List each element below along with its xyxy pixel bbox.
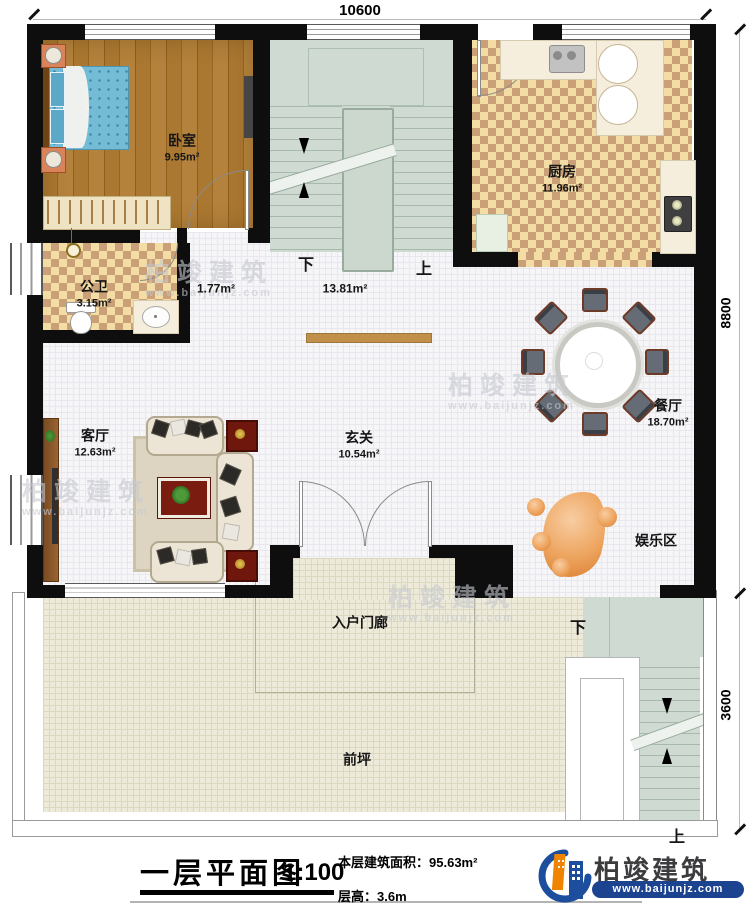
stair-flight-right — [390, 96, 453, 252]
watermark: 柏竣建筑 www.baijunjz.com — [388, 578, 516, 624]
dimension-tick — [734, 23, 746, 35]
wall — [453, 252, 518, 267]
wall — [453, 24, 472, 252]
window — [307, 24, 420, 40]
pendant-lamp-cord — [71, 228, 72, 244]
wall — [270, 545, 300, 558]
watermark-url: www.baijunjz.com — [22, 506, 150, 518]
wall — [43, 585, 65, 598]
floor-height-line: 层高：3.6m — [338, 886, 407, 905]
cabinet-medallion — [235, 559, 245, 569]
exterior-landing-line — [609, 597, 610, 657]
dimension-tick — [700, 8, 712, 20]
stair-down-label: 下 — [298, 257, 314, 275]
dimension-line-right — [739, 30, 740, 832]
pendant-lamp — [66, 243, 81, 258]
wall — [660, 585, 716, 598]
sofa-pillow — [175, 549, 193, 567]
table-lamp — [45, 47, 62, 64]
bean-bag-cushion — [527, 498, 545, 516]
room-label-entertainment: 娱乐区 — [635, 533, 677, 548]
watermark: 柏竣建筑 www.baijunjz.com — [448, 366, 576, 412]
watermark-text: 柏竣建筑 — [388, 584, 516, 612]
room-label-porch: 入户门廊 — [332, 615, 388, 630]
floor-area-line: 本层建筑面积：95.63m² — [338, 852, 477, 871]
dimension-top: 10600 — [339, 2, 381, 19]
brand-url: www.baijunjz.com — [613, 883, 724, 895]
bean-bag-cushion — [552, 558, 571, 577]
title-underline — [140, 890, 334, 895]
dimension-right-lower: 3600 — [718, 689, 734, 720]
wall — [253, 24, 270, 232]
room-label-kitchen: 厨房11.96m² — [542, 165, 582, 196]
dining-chair — [582, 288, 608, 312]
wall — [694, 24, 716, 598]
dimension-line-top — [33, 19, 706, 20]
bean-bag-cushion — [597, 507, 617, 527]
brand-logo-icon — [536, 846, 592, 906]
watermark-text: 柏竣建筑 — [448, 372, 576, 400]
dimension-right-upper: 8800 — [718, 297, 734, 328]
floor-area-value: 95.63m² — [429, 855, 477, 870]
watermark-url: www.baijunjz.com — [388, 612, 516, 624]
wall — [177, 228, 187, 243]
cabinet-medallion — [235, 429, 245, 439]
kitchen-appliance — [476, 214, 508, 252]
window — [85, 24, 215, 40]
exterior-stair-up-label: 上 — [669, 829, 685, 847]
floor-height-label: 层高： — [338, 889, 377, 904]
stove-burner — [672, 200, 682, 210]
stair-upper-outline — [308, 48, 424, 106]
stair-down-area: 1.77m² — [197, 282, 235, 295]
exterior-stair-arrow — [662, 748, 672, 764]
stair-landing — [342, 108, 394, 272]
stair-direction-arrow — [299, 182, 309, 198]
bed-blanket — [63, 66, 89, 148]
kitchen-sink-faucet — [567, 51, 576, 60]
bed-pillow — [50, 72, 65, 107]
brand-url-bar: www.baijunjz.com — [592, 881, 744, 898]
dining-chair — [582, 412, 608, 436]
floor-height-value: 3.6m — [377, 889, 407, 904]
sink-drain — [154, 315, 157, 318]
exterior-landing — [583, 597, 703, 657]
wall — [248, 228, 270, 243]
sofa-pillow — [191, 548, 208, 565]
title-block: 一层平面图 1:100 本层建筑面积：95.63m² 层高：3.6m 柏竣建筑 … — [0, 840, 750, 913]
toilet-bowl — [70, 311, 92, 334]
sofa-pillow — [222, 523, 241, 542]
room-label-dining: 餐厅18.70m² — [648, 399, 689, 430]
wall — [270, 558, 293, 598]
room-label-foyer: 玄关10.54m² — [339, 431, 380, 462]
kitchen-sink-faucet — [553, 51, 562, 60]
stair-direction-arrow — [299, 138, 309, 154]
plant — [172, 486, 190, 504]
dining-table-center — [585, 352, 603, 370]
plant — [45, 430, 55, 442]
floor-area-label: 本层建筑面积： — [338, 855, 429, 870]
stove-burner — [672, 216, 682, 226]
wardrobe-hangers — [47, 200, 165, 224]
room-label-front-yard: 前坪 — [343, 752, 371, 767]
window — [10, 243, 43, 295]
exterior-stair-down-label: 下 — [570, 620, 586, 638]
watermark-url: www.baijunjz.com — [448, 400, 576, 412]
wall — [27, 228, 140, 243]
tv-bedroom — [244, 76, 253, 138]
bed-pillow — [50, 109, 65, 144]
exterior-stair-wall — [703, 590, 717, 835]
watermark: 柏竣建筑 www.baijunjz.com — [22, 472, 150, 518]
window — [562, 24, 690, 40]
round-basin — [598, 44, 638, 84]
room-label-bathroom: 公卫3.15m² — [77, 280, 112, 311]
room-label-living: 客厅12.63m² — [75, 429, 116, 460]
garden-path-inner — [580, 678, 624, 836]
doormat — [306, 333, 432, 343]
dining-chair — [645, 349, 669, 375]
wall — [533, 24, 562, 40]
plan-title: 一层平面图 — [140, 850, 305, 892]
stair-up-area: 13.81m² — [323, 282, 368, 295]
wall — [652, 252, 716, 267]
stair-up-label: 上 — [416, 261, 432, 279]
watermark-text: 柏竣建筑 — [22, 478, 150, 506]
plan-scale: 1:100 — [283, 859, 344, 887]
dimension-tick — [734, 823, 746, 835]
room-label-bedroom: 卧室9.95m² — [165, 134, 200, 165]
floor-plan: 柏竣建筑 www.baijunjz.com 柏竣建筑 www.baijunjz.… — [0, 0, 750, 913]
kitchen-threshold — [518, 252, 652, 267]
bean-bag-cushion — [532, 532, 551, 551]
dimension-tick — [734, 587, 746, 599]
yard-wall-bottom — [12, 820, 718, 837]
round-basin — [598, 85, 638, 125]
exterior-stair-arrow — [662, 698, 672, 714]
table-lamp — [45, 151, 62, 168]
yard-wall-left — [12, 592, 25, 837]
window — [65, 583, 225, 598]
